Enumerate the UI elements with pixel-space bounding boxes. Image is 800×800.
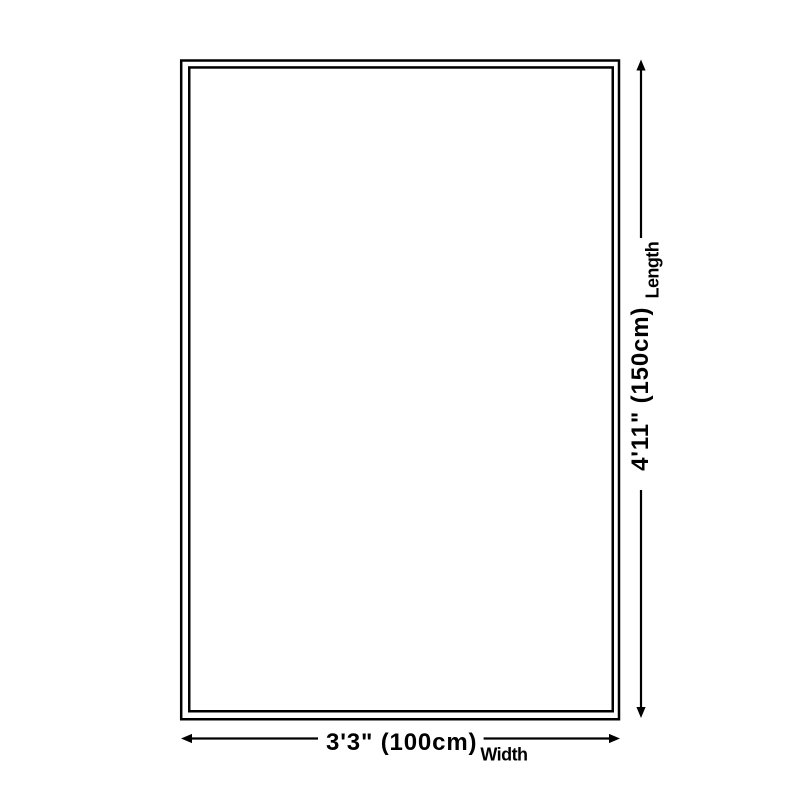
svg-text:Length: Length — [643, 242, 663, 299]
svg-text:Width: Width — [480, 745, 527, 765]
svg-text:3'3" (100cm): 3'3" (100cm) — [326, 729, 477, 756]
svg-text:4'11" (150cm): 4'11" (150cm) — [627, 307, 654, 471]
